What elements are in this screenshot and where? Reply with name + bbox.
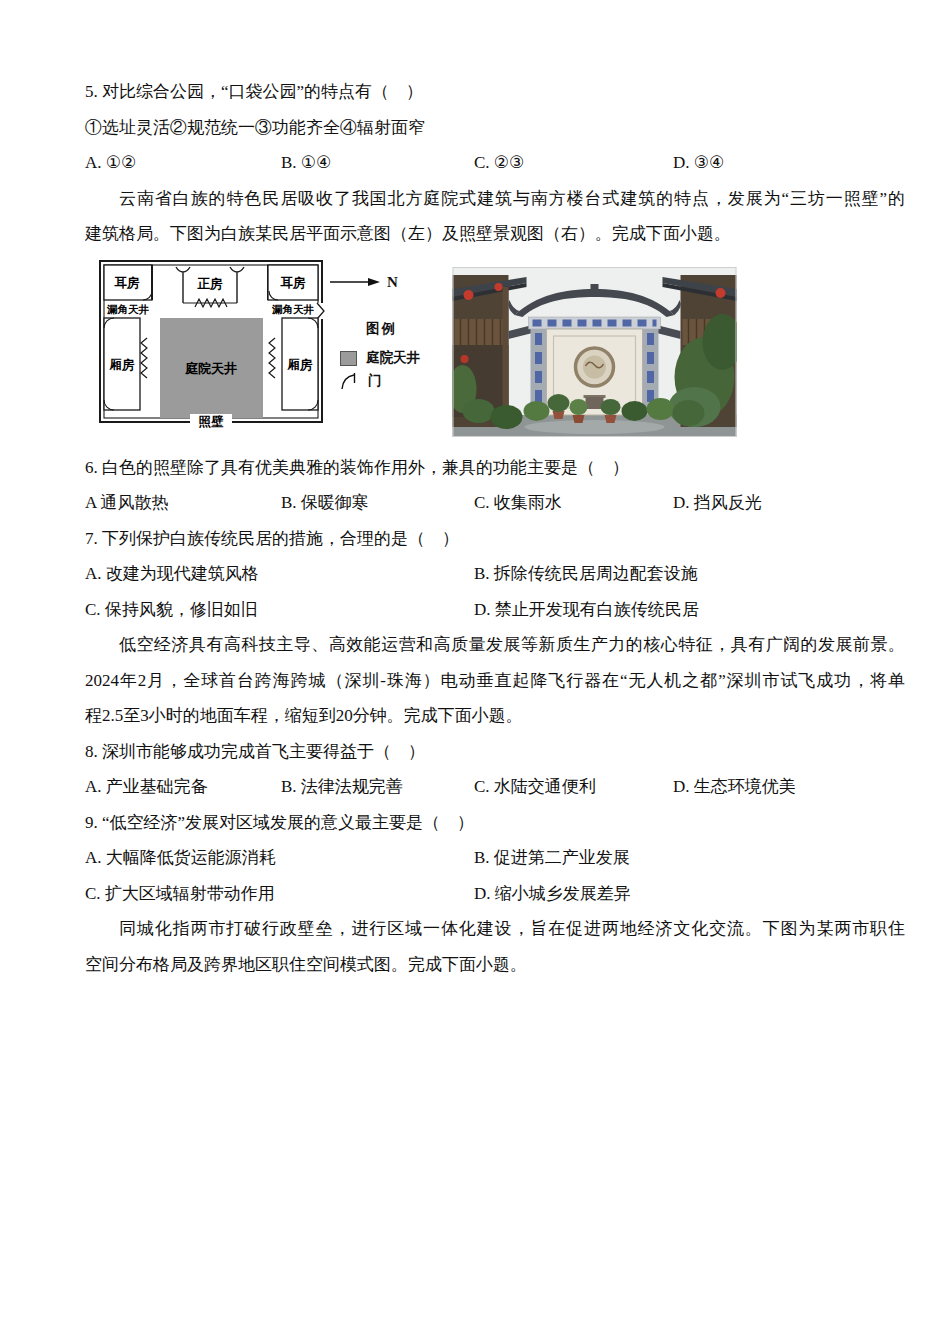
pot — [573, 415, 585, 423]
question-5-option-a: A. ①② — [85, 145, 281, 181]
question-5-options: A. ①② B. ①④ C. ②③ D. ③④ — [85, 145, 905, 181]
passage-city-integration: 同城化指两市打破行政壁垒，进行区域一体化建设，旨在促进两地经济文化交流。下图为某… — [85, 911, 905, 982]
main-room-wall-right — [230, 267, 244, 303]
ridge-ornament — [591, 284, 599, 290]
question-6-options: A 通风散热 B. 保暖御寒 C. 收集雨水 D. 挡风反光 — [85, 485, 905, 521]
north-arrow: N — [330, 274, 398, 291]
question-7-option-a: A. 改建为现代建筑风格 — [85, 556, 474, 592]
question-5-option-b: B. ①④ — [281, 145, 474, 181]
question-8-option-b: B. 法律法规完善 — [281, 769, 474, 805]
question-6-option-d: D. 挡风反光 — [673, 485, 905, 521]
screen-wall-photo — [452, 267, 737, 437]
question-9-option-b: B. 促进第二产业发展 — [474, 840, 905, 876]
door-symbol — [340, 372, 359, 390]
question-9-options-row2: C. 扩大区域辐射带动作用 D. 缩小城乡发展差异 — [85, 876, 905, 912]
exam-page: 5. 对比综合公园，“口袋公园”的特点有（ ） ①选址灵活②规范统一③功能齐全④… — [0, 0, 950, 982]
main-room-label: 正房 — [197, 277, 224, 291]
passage-line: 云南省白族的特色民居吸收了我国北方庭院式建筑与南方楼台式建筑的特点，发展为“三坊… — [85, 181, 905, 217]
figure-bai-dwelling: 耳房 正房 耳房 漏角天井 漏角天井 厢房 — [85, 252, 905, 450]
question-5-stem: 5. 对比综合公园，“口袋公园”的特点有（ ） — [85, 74, 905, 110]
lantern — [716, 288, 726, 298]
gate-gap — [316, 303, 324, 319]
question-5-statements: ①选址灵活②规范统一③功能齐全④辐射面窄 — [85, 110, 905, 146]
pot — [605, 415, 617, 423]
wing-room-right-label: 厢房 — [287, 358, 314, 372]
question-7-stem: 7. 下列保护白族传统民居的措施，合理的是（ ） — [85, 521, 905, 557]
passage-line: 低空经济具有高科技主导、高效能运营和高质量发展等新质生产力的核心特征，具有广阔的… — [85, 627, 905, 663]
screen-wall-label: 照壁 — [199, 415, 225, 429]
passage-line: 2024年2月，全球首台跨海跨城（深圳-珠海）电动垂直起降飞行器在“无人机之都”… — [85, 663, 905, 699]
floor-plan-diagram: 耳房 正房 耳房 漏角天井 漏角天井 厢房 — [99, 260, 325, 430]
north-arrow-icon — [330, 276, 382, 288]
passage-bai-dwellings: 云南省白族的特色民居吸收了我国北方庭院式建筑与南方楼台式建筑的特点，发展为“三坊… — [85, 181, 905, 252]
question-8-option-d: D. 生态环境优美 — [673, 769, 905, 805]
question-5-option-d: D. ③④ — [673, 145, 905, 181]
legend-item-door: 门 — [340, 370, 420, 393]
lantern — [461, 355, 469, 363]
corner-courtyard-right-label: 漏角天井 — [271, 304, 315, 315]
pot — [553, 411, 565, 419]
question-5-option-c: C. ②③ — [474, 145, 673, 181]
medallion-center — [583, 355, 606, 378]
corner-courtyard-left-label: 漏角天井 — [106, 304, 150, 315]
figure-annotations: N 图例 庭院天井 门 — [330, 252, 450, 450]
question-8-options: A. 产业基础完备 B. 法律法规完善 C. 水陆交通便利 D. 生态环境优美 — [85, 769, 905, 805]
question-8-option-a: A. 产业基础完备 — [85, 769, 281, 805]
steps-zigzag — [269, 338, 275, 378]
legend-door-label: 门 — [368, 372, 382, 390]
legend-title: 图例 — [366, 320, 420, 338]
passage-line: 建筑格局。下图为白族某民居平面示意图（左）及照壁景观图（右）。完成下面小题。 — [85, 216, 905, 252]
question-9-stem: 9. “低空经济”发展对区域发展的意义最主要是（ ） — [85, 805, 905, 841]
question-9-options-row1: A. 大幅降低货运能源消耗 B. 促进第二产业发展 — [85, 840, 905, 876]
question-6-stem: 6. 白色的照壁除了具有优美典雅的装饰作用外，兼具的功能主要是（ ） — [85, 450, 905, 486]
question-7-option-c: C. 保持风貌，修旧如旧 — [85, 592, 474, 628]
ground-sheen — [525, 420, 665, 434]
question-9-option-c: C. 扩大区域辐射带动作用 — [85, 876, 474, 912]
main-room-wall-left — [176, 267, 190, 303]
lantern — [464, 290, 474, 300]
question-8-option-c: C. 水陆交通便利 — [474, 769, 673, 805]
question-8-stem: 8. 深圳市能够成功完成首飞主要得益于（ ） — [85, 734, 905, 770]
question-6-option-b: B. 保暖御寒 — [281, 485, 474, 521]
question-6-option-a: A 通风散热 — [85, 485, 281, 521]
passage-low-altitude-economy: 低空经济具有高科技主导、高效能运营和高质量发展等新质生产力的核心特征，具有广阔的… — [85, 627, 905, 734]
legend-item-courtyard: 庭院天井 — [340, 347, 420, 370]
question-7-option-d: D. 禁止开发现有白族传统民居 — [474, 592, 905, 628]
ear-room-right-label: 耳房 — [280, 276, 307, 290]
question-6-option-c: C. 收集雨水 — [474, 485, 673, 521]
legend-courtyard-label: 庭院天井 — [366, 349, 420, 367]
question-9-option-a: A. 大幅降低货运能源消耗 — [85, 840, 474, 876]
passage-line: 空间分布格局及跨界地区职住空间模式图。完成下面小题。 — [85, 947, 905, 983]
legend: 图例 庭院天井 门 — [340, 320, 420, 393]
question-7-options-row2: C. 保持风貌，修旧如旧 D. 禁止开发现有白族传统民居 — [85, 592, 905, 628]
wing-room-left-label: 厢房 — [109, 358, 136, 372]
question-7-options-row1: A. 改建为现代建筑风格 B. 拆除传统民居周边配套设施 — [85, 556, 905, 592]
ear-room-left-label: 耳房 — [114, 276, 141, 290]
passage-line: 同城化指两市打破行政壁垒，进行区域一体化建设，旨在促进两地经济文化交流。下图为某… — [85, 911, 905, 947]
question-7-option-b: B. 拆除传统民居周边配套设施 — [474, 556, 905, 592]
question-9-option-d: D. 缩小城乡发展差异 — [474, 876, 905, 912]
steps-zigzag — [141, 338, 147, 378]
courtyard-swatch — [340, 351, 357, 366]
lantern — [495, 283, 503, 291]
courtyard-label: 庭院天井 — [184, 361, 237, 376]
passage-line: 程2.5至3小时的地面车程，缩短到20分钟。完成下面小题。 — [85, 698, 905, 734]
north-label: N — [387, 274, 398, 291]
